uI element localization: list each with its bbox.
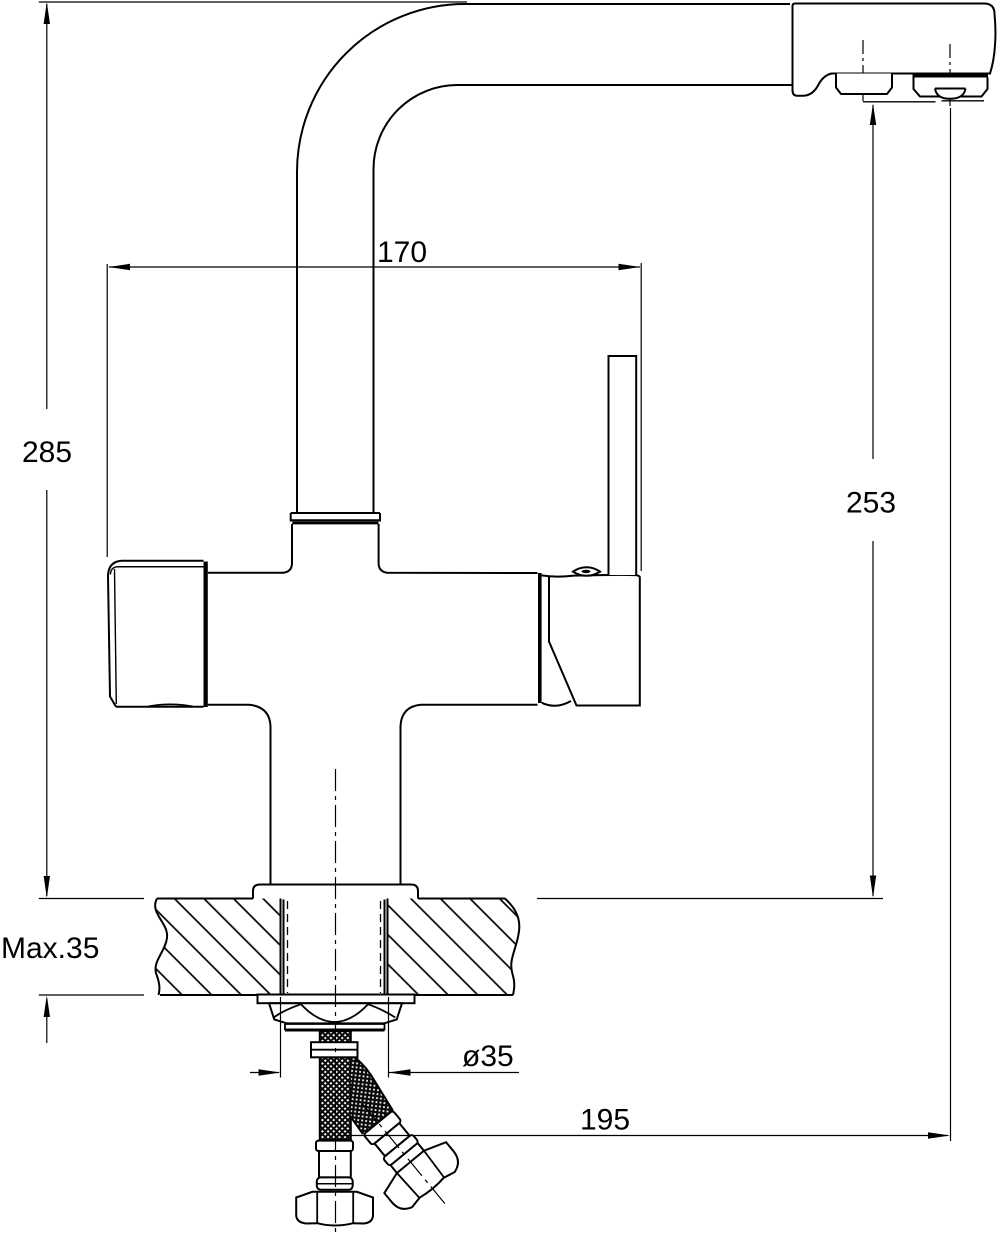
svg-text:253: 253 (846, 487, 896, 520)
svg-text:Max.35: Max.35 (1, 932, 99, 965)
svg-text:195: 195 (580, 1104, 630, 1137)
svg-text:285: 285 (22, 436, 72, 469)
svg-text:170: 170 (377, 236, 427, 269)
svg-text:ø35: ø35 (462, 1040, 514, 1073)
